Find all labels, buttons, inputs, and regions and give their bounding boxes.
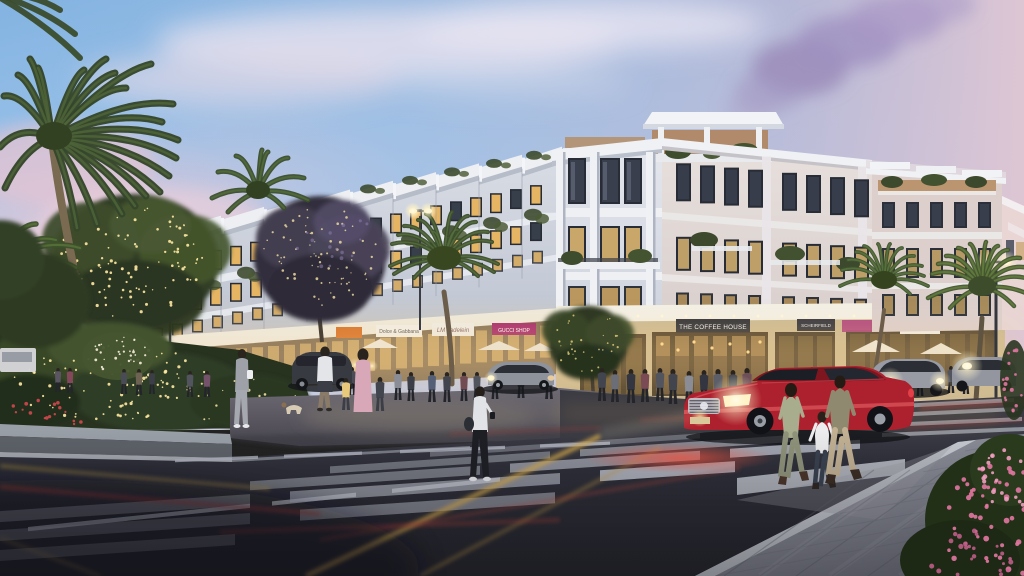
svg-text:SCHEIRFIELD: SCHEIRFIELD — [801, 323, 832, 328]
svg-text:THE COFFEE HOUSE: THE COFFEE HOUSE — [679, 324, 747, 331]
